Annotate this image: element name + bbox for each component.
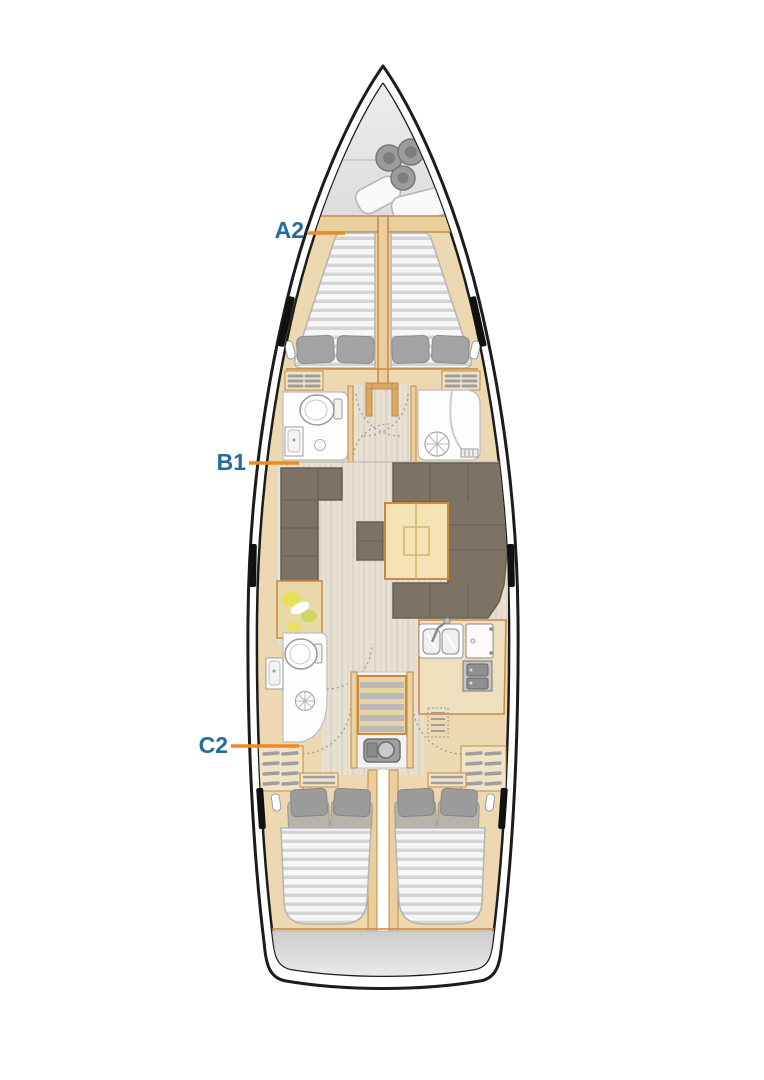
sink-icon <box>285 427 303 456</box>
chart-table <box>277 581 322 638</box>
heads-passage-floor <box>350 385 414 465</box>
shower-drain-icon <box>425 432 449 456</box>
refrigerator-icon <box>466 624 493 658</box>
cabin-label-a2-text: A2 <box>275 217 304 243</box>
engine-icon <box>364 739 400 762</box>
vent-grate-icon <box>461 449 478 457</box>
galley <box>419 618 506 714</box>
aft-cabins <box>271 770 495 934</box>
aft-mattress-starboard <box>395 828 485 924</box>
reading-light-icon <box>271 794 281 812</box>
cabin-label-b1-text: B1 <box>217 449 247 475</box>
reading-light-icon <box>485 794 495 812</box>
saloon-table <box>385 503 448 579</box>
berth-center-divider <box>378 216 388 392</box>
head-wall-port <box>348 386 353 464</box>
companionway-stairs <box>358 676 406 734</box>
aft-mattress-port <box>281 828 371 924</box>
shower-drain-icon <box>296 692 315 711</box>
head-wall-starboard <box>411 386 416 464</box>
cabin-label-c2-text: C2 <box>199 732 228 758</box>
sink-icon <box>266 658 283 689</box>
stove-icon <box>463 661 492 691</box>
forward-heads <box>283 383 480 465</box>
aft-cabin-divider-gap <box>377 770 389 934</box>
yacht-layout-diagram: A2 B1 C2 <box>0 0 764 1080</box>
double-sink-icon <box>419 618 463 658</box>
